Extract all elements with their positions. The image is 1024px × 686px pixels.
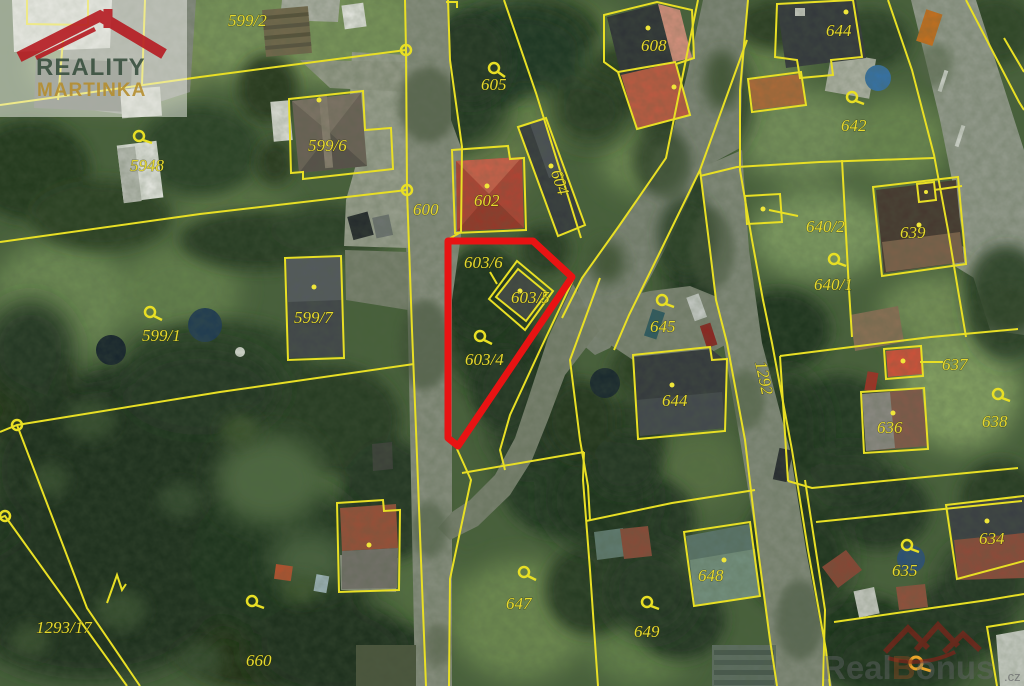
svg-text:638: 638 (982, 412, 1008, 431)
svg-text:603/6: 603/6 (464, 253, 503, 272)
svg-text:.cz: .cz (1004, 669, 1021, 684)
svg-text:603/4: 603/4 (465, 350, 504, 369)
svg-text:5948: 5948 (130, 156, 165, 175)
svg-text:635: 635 (892, 561, 918, 580)
svg-text:647: 647 (506, 594, 533, 613)
svg-text:599/2: 599/2 (228, 11, 267, 30)
svg-text:640/1: 640/1 (814, 275, 853, 294)
svg-text:644: 644 (826, 21, 852, 40)
svg-text:636: 636 (877, 418, 903, 437)
svg-text:605: 605 (481, 75, 507, 94)
svg-text:637: 637 (942, 355, 969, 374)
svg-text:602: 602 (474, 191, 500, 210)
svg-text:642: 642 (841, 116, 867, 135)
svg-text:RealBonus: RealBonus (822, 649, 994, 686)
svg-text:639: 639 (900, 223, 926, 242)
svg-text:599/1: 599/1 (142, 326, 181, 345)
svg-text:644: 644 (662, 391, 688, 410)
svg-text:634: 634 (979, 529, 1005, 548)
svg-text:600: 600 (413, 200, 439, 219)
svg-text:648: 648 (698, 566, 724, 585)
svg-text:660: 660 (246, 651, 272, 670)
svg-text:MARTINKA: MARTINKA (37, 80, 146, 101)
svg-text:640/2: 640/2 (806, 217, 845, 236)
svg-text:603/5: 603/5 (511, 288, 550, 307)
svg-text:649: 649 (634, 622, 660, 641)
svg-text:REALITY: REALITY (36, 54, 146, 81)
svg-text:1293/17: 1293/17 (36, 618, 93, 637)
svg-text:645: 645 (650, 317, 676, 336)
svg-text:599/6: 599/6 (308, 136, 347, 155)
svg-text:608: 608 (641, 36, 667, 55)
svg-text:599/7: 599/7 (294, 308, 334, 327)
